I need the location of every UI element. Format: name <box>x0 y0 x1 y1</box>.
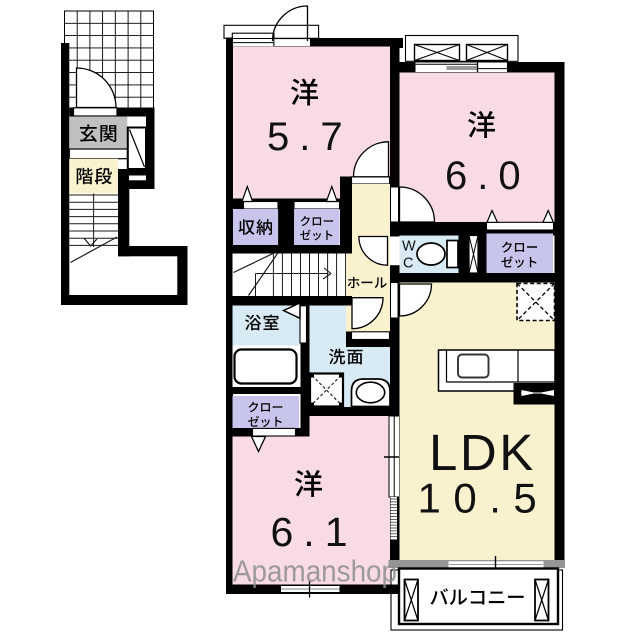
svg-text:Apamanshop: Apamanshop <box>233 554 397 589</box>
svg-text:6.0: 6.0 <box>445 154 531 198</box>
svg-text:10.5: 10.5 <box>418 475 550 522</box>
svg-text:6.1: 6.1 <box>271 509 358 555</box>
svg-text:5.7: 5.7 <box>267 115 353 159</box>
svg-text:LDK: LDK <box>429 424 536 481</box>
svg-text:C: C <box>403 256 413 272</box>
svg-text:W: W <box>402 239 416 255</box>
